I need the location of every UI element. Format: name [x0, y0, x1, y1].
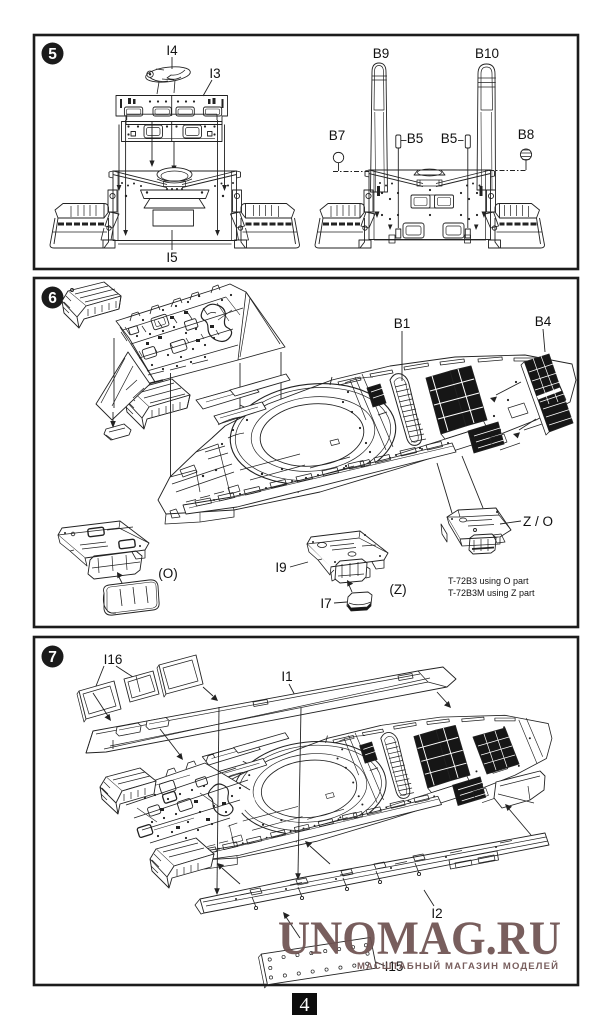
svg-text:UNOMAG.RU: UNOMAG.RU — [278, 912, 561, 965]
svg-text:I9: I9 — [275, 560, 286, 575]
svg-text:B10: B10 — [475, 46, 499, 61]
svg-text:Z / O: Z / O — [523, 514, 553, 529]
svg-text:7: 7 — [48, 649, 57, 666]
svg-text:I3: I3 — [209, 66, 220, 81]
svg-text:B9: B9 — [373, 46, 390, 61]
svg-text:6: 6 — [48, 290, 57, 307]
svg-text:B5: B5 — [407, 131, 424, 146]
svg-text:B1: B1 — [394, 316, 411, 331]
svg-text:I7: I7 — [320, 596, 331, 611]
svg-text:(Z): (Z) — [389, 582, 406, 597]
svg-text:T-72B3 using O part: T-72B3 using O part — [448, 576, 529, 586]
svg-text:T-72B3M using Z part: T-72B3M using Z part — [448, 588, 535, 598]
svg-text:4: 4 — [300, 994, 310, 1016]
svg-text:I16: I16 — [104, 652, 123, 667]
svg-text:B8: B8 — [518, 127, 535, 142]
svg-text:5: 5 — [48, 46, 57, 63]
svg-text:(O): (O) — [158, 566, 178, 581]
svg-text:I5: I5 — [166, 250, 177, 265]
svg-text:I1: I1 — [281, 669, 292, 684]
svg-text:B5: B5 — [441, 131, 458, 146]
svg-text:МАСШТАБНЫЙ МАГАЗИН МОДЕЛЕЙ: МАСШТАБНЫЙ МАГАЗИН МОДЕЛЕЙ — [357, 960, 561, 972]
svg-text:B7: B7 — [329, 128, 346, 143]
svg-text:I4: I4 — [166, 43, 178, 58]
svg-text:B4: B4 — [535, 314, 552, 329]
